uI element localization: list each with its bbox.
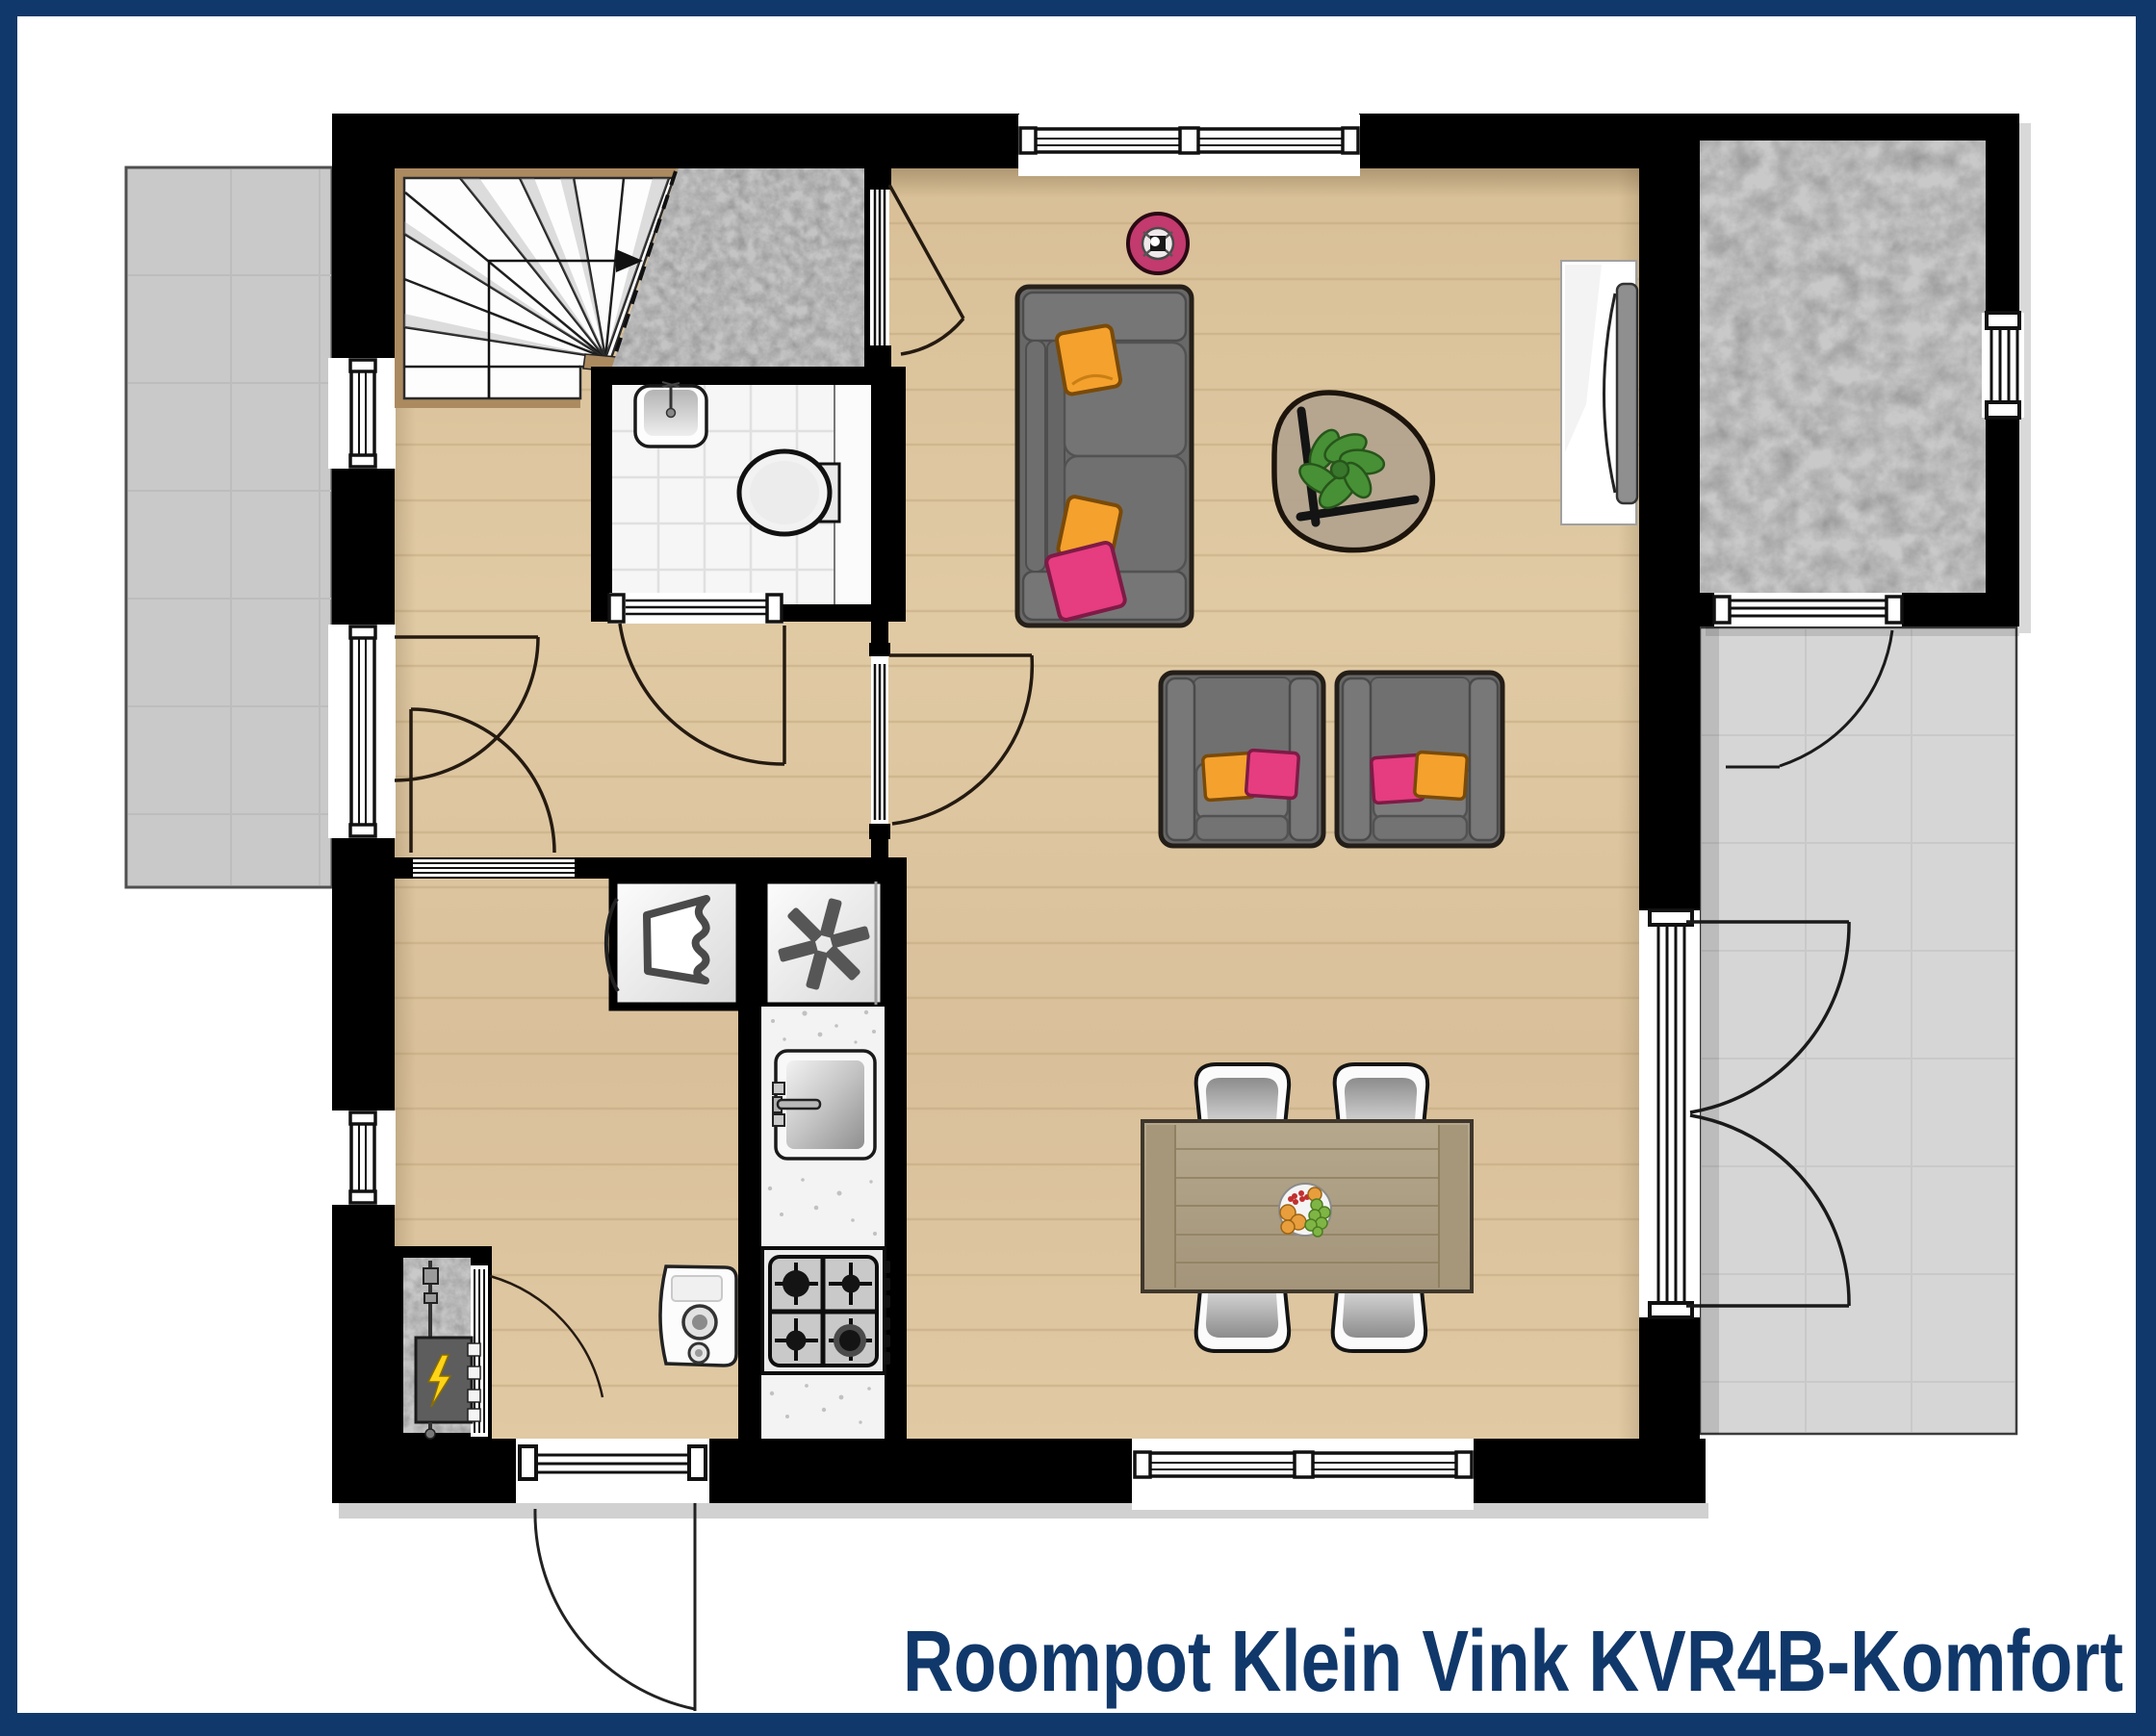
svg-text:Roompot Klein Vink KVR4B-Komfo: Roompot Klein Vink KVR4B-Komfort	[903, 1614, 2123, 1710]
